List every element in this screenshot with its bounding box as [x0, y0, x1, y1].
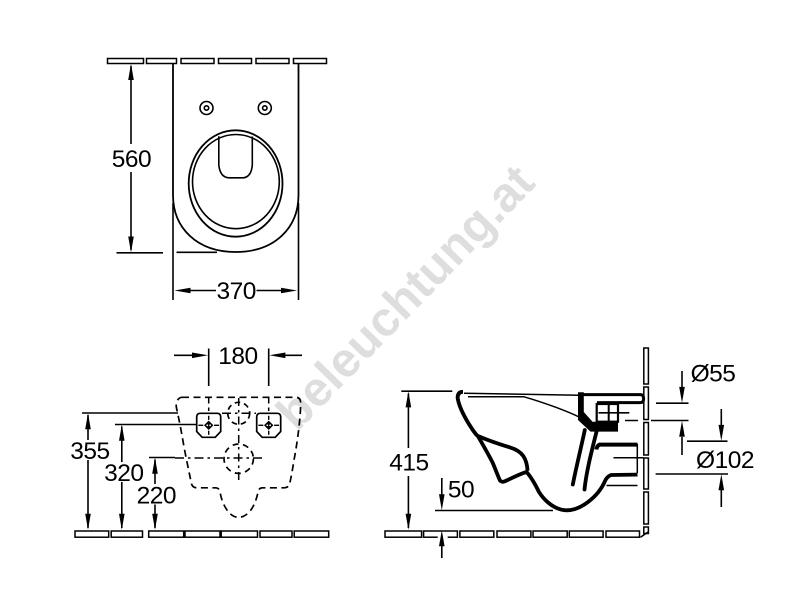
svg-text:Ø102: Ø102 [696, 447, 754, 474]
svg-text:Ø55: Ø55 [691, 360, 736, 387]
svg-text:220: 220 [137, 482, 176, 509]
svg-text:50: 50 [448, 477, 474, 504]
svg-text:370: 370 [217, 278, 256, 305]
svg-text:180: 180 [218, 343, 257, 370]
svg-text:560: 560 [112, 146, 151, 173]
svg-text:415: 415 [389, 450, 428, 477]
